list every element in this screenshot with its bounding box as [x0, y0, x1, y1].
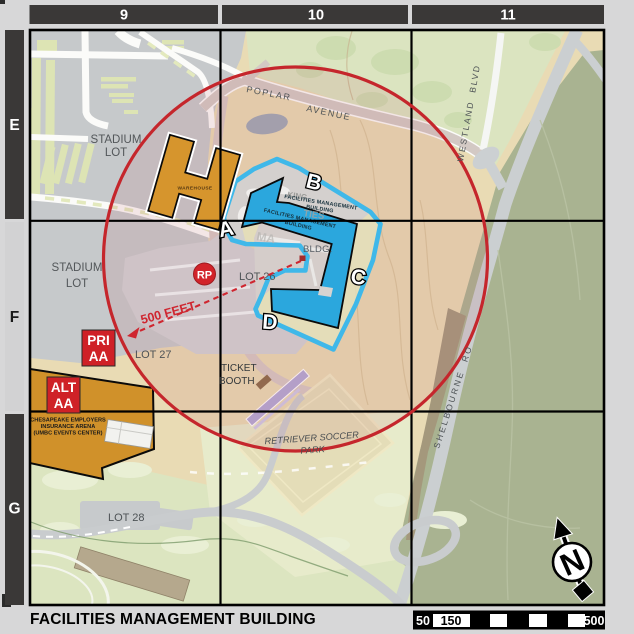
svg-text:BOOTH: BOOTH [219, 376, 255, 387]
svg-text:LOT 26: LOT 26 [239, 271, 276, 283]
svg-text:INSURANCE ARENA: INSURANCE ARENA [41, 424, 96, 430]
svg-text:CHESAPEAKE EMPLOYERS: CHESAPEAKE EMPLOYERS [30, 418, 106, 424]
svg-text:WAREHOUSE: WAREHOUSE [177, 186, 212, 192]
svg-text:ALT: ALT [51, 380, 77, 395]
svg-text:D: D [262, 310, 279, 334]
svg-text:PARK: PARK [300, 444, 326, 456]
svg-text:150: 150 [441, 614, 462, 628]
svg-text:500: 500 [584, 614, 605, 628]
svg-text:STADIUM: STADIUM [52, 262, 103, 274]
svg-text:50: 50 [416, 614, 430, 628]
svg-text:RP: RP [197, 270, 212, 282]
svg-text:PRI: PRI [87, 333, 110, 348]
svg-text:F: F [10, 309, 19, 326]
svg-text:10: 10 [308, 8, 324, 24]
svg-text:AA: AA [89, 349, 109, 364]
svg-text:LOT 27: LOT 27 [135, 349, 172, 361]
svg-text:(UMBC EVENTS CENTER): (UMBC EVENTS CENTER) [34, 431, 103, 437]
svg-text:BLDG.: BLDG. [303, 244, 333, 255]
svg-text:STADIUM: STADIUM [91, 134, 142, 146]
svg-text:LOT 28: LOT 28 [108, 512, 145, 524]
svg-text:LOT: LOT [66, 278, 88, 290]
svg-text:FACILITIES MANAGEMENT BUILDING: FACILITIES MANAGEMENT BUILDING [30, 611, 316, 628]
svg-text:9: 9 [120, 8, 128, 24]
svg-text:G: G [8, 501, 20, 518]
svg-text:11: 11 [500, 8, 515, 24]
svg-text:LOT: LOT [105, 147, 127, 159]
svg-text:TICKET: TICKET [221, 363, 257, 374]
svg-text:E: E [9, 117, 19, 134]
svg-text:AA: AA [54, 396, 74, 411]
